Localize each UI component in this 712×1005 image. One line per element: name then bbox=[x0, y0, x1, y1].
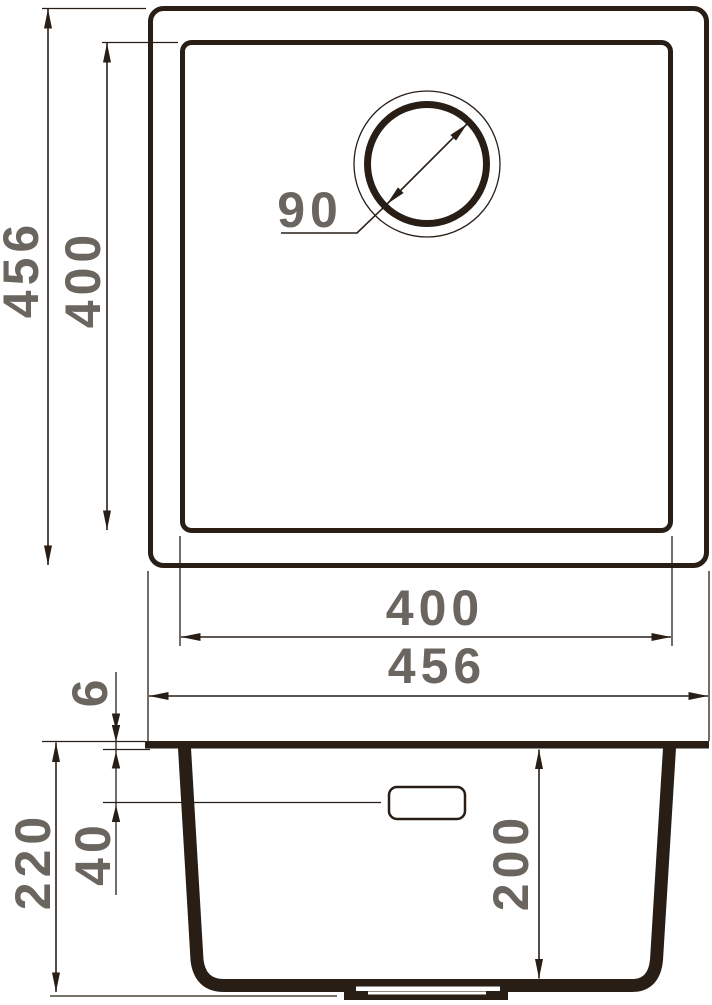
label-inner-height: 400 bbox=[55, 230, 111, 328]
drain-boss-step-lower bbox=[368, 992, 486, 995]
label-drain-diameter: 90 bbox=[277, 182, 343, 238]
label-bowl-depth: 200 bbox=[483, 813, 539, 911]
label-overflow-drop: 40 bbox=[65, 820, 121, 886]
label-inner-width: 400 bbox=[386, 580, 484, 636]
label-overall-height: 220 bbox=[5, 812, 61, 910]
drain-boss-step-upper bbox=[356, 987, 500, 992]
arrowhead-overflow-level bbox=[112, 805, 120, 822]
top-view: 90 456 400 400 456 bbox=[0, 9, 709, 742]
technical-drawing-canvas: 90 456 400 400 456 22 bbox=[0, 0, 712, 1005]
label-rim-thickness: 6 bbox=[62, 675, 118, 708]
arrowhead-rim-bottom bbox=[112, 752, 120, 769]
top-view-bowl-outline bbox=[183, 43, 671, 531]
drain-diameter-arrow bbox=[387, 124, 467, 204]
side-view: 220 6 40 200 bbox=[5, 672, 709, 1000]
top-view-outer-outline bbox=[151, 9, 707, 566]
overflow-slot bbox=[389, 787, 465, 819]
side-view-bowl-wall bbox=[185, 748, 670, 986]
side-view-rim bbox=[145, 741, 709, 749]
label-outer-height: 456 bbox=[0, 220, 49, 318]
label-outer-width: 456 bbox=[388, 638, 486, 694]
sink-dimension-drawing: 90 456 400 400 456 22 bbox=[0, 0, 712, 1005]
